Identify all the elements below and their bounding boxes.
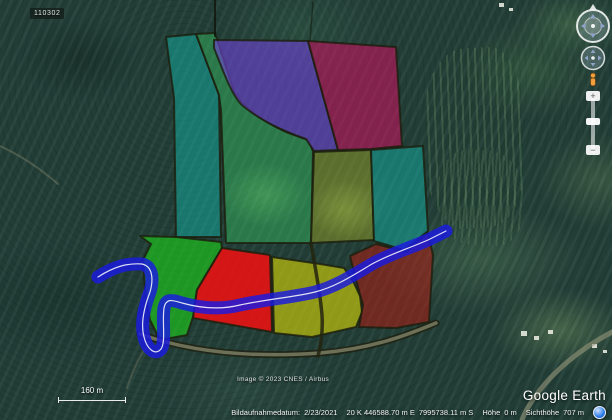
scale-bar-label: 160 m [58,386,126,395]
eye-altitude-value: 707 m [563,408,584,417]
road-trail-top-left [0,146,58,184]
navigation-controls: + − [571,3,612,163]
utm-easting: 20 K 446588.70 m E [346,408,414,417]
zoom-in-label: + [590,91,595,101]
building [534,336,539,340]
google-earth-window: 110302 160 m Image © 2023 CNES / Airbus … [0,0,612,420]
map-overlay-layer[interactable] [0,0,612,420]
north-indicator-icon[interactable] [590,4,597,10]
look-joystick[interactable] [577,4,609,42]
imagery-date-value: 2/23/2021 [304,408,337,417]
utm-northing: 7995738.11 m S [419,408,474,417]
elevation-value: 0 m [504,408,517,417]
road-fence-line-2 [310,2,313,41]
zoom-control: + − [586,91,600,155]
google-earth-logo: Google Earth [523,388,606,403]
building [521,331,527,336]
elevation-label: Höhe [482,408,500,417]
imagery-attribution: Image © 2023 CNES / Airbus [237,376,329,383]
move-joystick[interactable] [582,47,605,70]
status-bar: Bildaufnahmedatum: 2/23/2021 20 K 446588… [0,405,612,419]
placemark-label[interactable]: 110302 [30,8,64,19]
zoom-slider-handle[interactable] [586,118,600,125]
eye-altitude-label: Sichthöhe [526,408,559,417]
placemark-label-text: 110302 [34,10,60,17]
building [509,8,513,11]
parcel-teal-right[interactable] [371,146,428,250]
parcel-olive[interactable] [311,150,374,243]
building [548,330,553,334]
zoom-out-label: − [590,145,595,155]
scale-bar-line [58,397,126,403]
globe-status-icon [593,406,606,419]
imagery-date-label: Bildaufnahmedatum: [231,408,300,417]
building [499,3,504,7]
scale-bar: 160 m [58,386,126,403]
building [603,350,607,353]
pegman-icon[interactable] [591,73,596,86]
